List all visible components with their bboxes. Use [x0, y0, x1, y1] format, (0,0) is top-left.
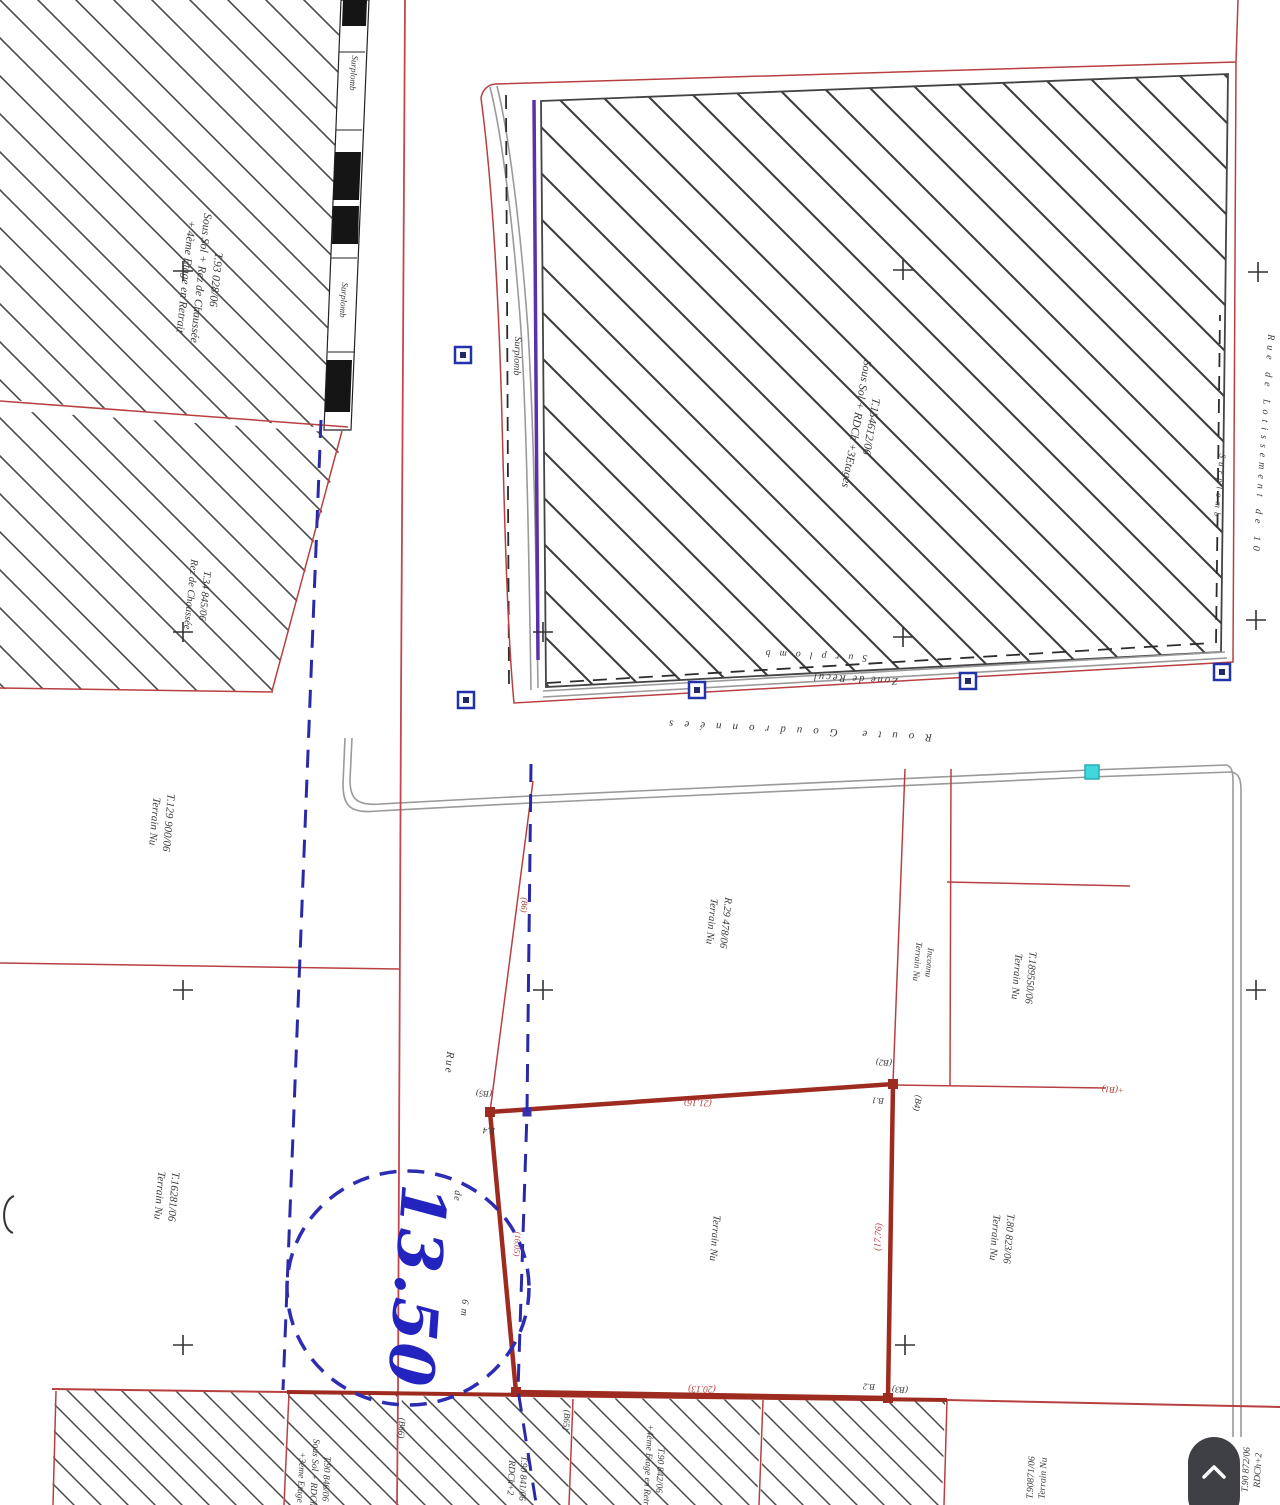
dim-bottom-label: (20.13): [688, 1382, 716, 1395]
vertex-name-b1: B.1: [871, 1094, 884, 1107]
blue-marker-icon: [960, 673, 976, 689]
blue-marker-icon: [689, 682, 705, 698]
street-6m-label: 6 m: [457, 1299, 471, 1318]
dim-street-label: (16.05): [511, 1231, 523, 1256]
surplomb-purple-line: [534, 100, 538, 660]
subject-parcel-outline: [490, 1084, 893, 1398]
vertex-code-b66: (B66): [394, 1417, 407, 1438]
parcel-bottom-c-label: T.90 841/06RDCh+2: [502, 1455, 529, 1501]
width-stamp-value: 13.50: [369, 1181, 464, 1390]
vertex-name-b2: B.2: [863, 1380, 876, 1392]
vertex-code-b3: (B3): [892, 1383, 909, 1396]
parcel-r29-label: R.29 478/06Terrain Nu: [702, 895, 734, 949]
parcel-vertex-nodes: [485, 1079, 898, 1403]
cyan-marker-icon: [1085, 765, 1099, 779]
parcel-bottom-f1-label: T.90871/06Terrain Nu: [1025, 1456, 1052, 1500]
parcel-bottom-d-label: T.90 842/06+4ème Etage en Retrait: [638, 1424, 667, 1505]
vertex-name-b4: B.4: [482, 1124, 495, 1137]
street-rue-label: Rue: [441, 1051, 457, 1075]
vertex-code-b5: (B5): [476, 1087, 493, 1100]
vertex-code-b65: (B65): [559, 1409, 572, 1430]
blue-marker-icon: [455, 347, 471, 363]
left-edge-curve-mark: [4, 1196, 14, 1233]
scroll-to-top-button[interactable]: [1188, 1437, 1240, 1505]
vertex-code-b6: (B6): [518, 897, 530, 913]
blue-marker-icon: [1214, 664, 1230, 680]
blue-marker-icon: [458, 692, 474, 708]
parcel-t162-label: T.16281/06Terrain Nu: [150, 1170, 183, 1222]
vertex-code-b2: (B2): [876, 1056, 893, 1069]
parcel-t189-label: T.189550/06Terrain Nu: [1007, 950, 1039, 1005]
parcel-bottom-b-label: T.90 846/06Sous Sol + RDCh+2+3ème Etage: [292, 1438, 333, 1505]
parcel-inconnu-label: InconnuTerrain Nu: [910, 941, 937, 982]
parcel-t80-label: T.80 823/06Terrain Nu: [985, 1212, 1017, 1264]
chevron-up-icon: [1201, 1463, 1227, 1481]
vertex-code-b1-far: +(B1): [1102, 1083, 1125, 1096]
parcel-t129-label: T.129 900/06Terrain Nu: [144, 792, 178, 852]
surplomb-band2-label: Surplomb: [336, 282, 350, 318]
surplomb-band1-label: Surplomb: [346, 55, 360, 91]
cadastral-plan-page: T.93 028/06Sous Sol + Rez de Chaussée+ 4…: [0, 0, 1280, 1505]
dim-right-label: (17.76): [872, 1223, 886, 1251]
dim-top-label: (21.16): [684, 1095, 712, 1108]
surplomb-street-label: Surplomb: [510, 336, 524, 375]
parcel-bottom-f2-label: T.90 872/06RDCh+2: [1239, 1447, 1266, 1493]
